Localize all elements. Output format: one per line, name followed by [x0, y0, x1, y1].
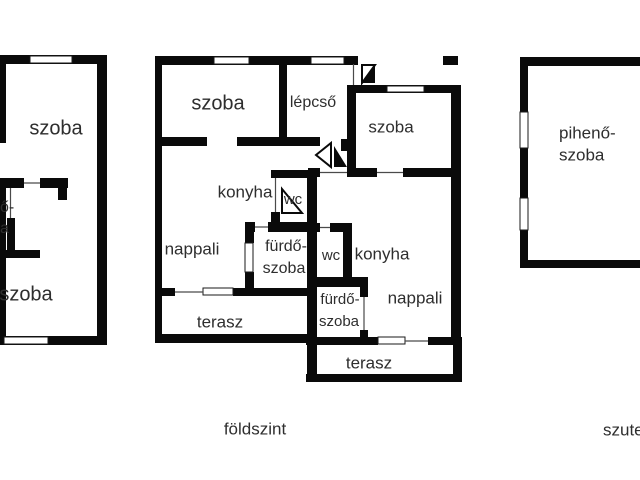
caption-szuteren: szuterén [603, 420, 640, 439]
basement-plan: pihenő- szoba szuterén [520, 57, 640, 439]
ground-floor-plan: szoba lépcső szoba konyha wc nappali für… [155, 56, 462, 438]
room-label-fragment-1: ő- [0, 199, 14, 216]
room-label-furdo-right-2: szoba [319, 313, 360, 330]
window-icon [4, 337, 48, 344]
room-label-terasz-right: terasz [346, 353, 392, 372]
window-icon [520, 198, 528, 230]
room-label-konyha-left: konyha [218, 182, 273, 201]
window-icon [311, 57, 344, 64]
room-label-lepcso: lépcső [290, 94, 336, 111]
window-icon [245, 243, 253, 272]
room-label-wc-left: wc [283, 191, 303, 208]
window-icon [520, 112, 528, 148]
room-label-nappali-left: nappali [165, 239, 220, 258]
room-label-fragment-2: a [0, 220, 9, 237]
room-label-wc-right: wc [321, 247, 341, 264]
caption-foldszint: földszint [224, 419, 287, 438]
window-icon [387, 86, 424, 92]
left-plan: szoba ő- a szoba [0, 55, 107, 345]
window-icon [378, 337, 405, 344]
room-label-nappali-right: nappali [388, 288, 443, 307]
room-label-szoba-top-right: szoba [368, 117, 414, 136]
floor-plan-image: szoba ő- a szoba szoba lépcső szoba [0, 0, 640, 480]
window-icon [214, 57, 249, 64]
room-label-terasz-left: terasz [197, 312, 243, 331]
room-label-szoba-bottom: szoba [0, 283, 54, 305]
floor-plan-canvas: szoba ő- a szoba szoba lépcső szoba [0, 0, 640, 480]
room-label-furdo-right-1: fürdő- [320, 291, 359, 308]
room-label-furdo-left-1: fürdő- [265, 238, 307, 255]
window-icon [30, 56, 72, 63]
room-label-furdo-left-2: szoba [263, 260, 306, 277]
room-label-szoba-top: szoba [29, 117, 83, 139]
left-plan-openings [11, 183, 41, 218]
door-swing-entrance-icon [362, 65, 375, 83]
window-icon [203, 288, 233, 295]
room-label-konyha-right: konyha [355, 244, 410, 263]
room-label-szoba-top-left: szoba [191, 92, 245, 114]
room-label-piheno-2: szoba [559, 145, 605, 164]
door-leaf-icon [316, 143, 331, 167]
room-label-piheno-1: pihenő- [559, 123, 616, 142]
